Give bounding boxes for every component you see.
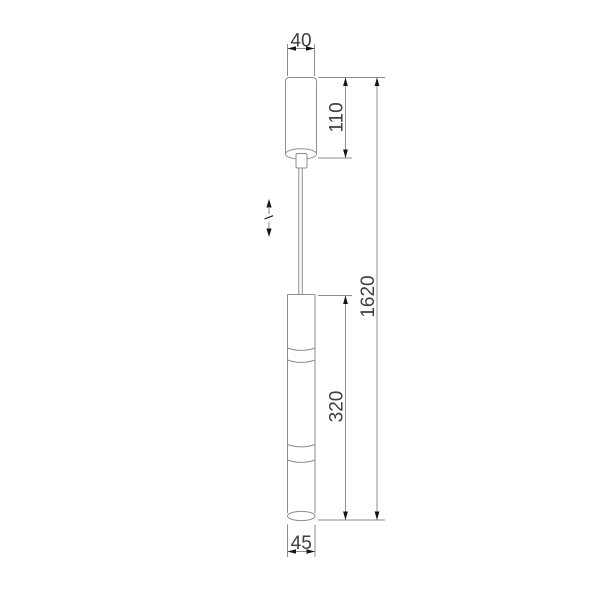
canopy	[286, 78, 317, 169]
drawing-canvas: 40 110 320 1620	[0, 0, 600, 600]
arrowhead-down	[375, 512, 380, 521]
down-arrow-icon	[266, 229, 271, 238]
dim-label-body-height: 320	[327, 391, 348, 423]
dim-canopy-width: 40	[288, 31, 315, 77]
height-adjust-icon	[265, 199, 274, 237]
arrowhead-down	[343, 512, 348, 521]
dim-label-total-height: 1620	[358, 275, 379, 317]
lamp-body	[288, 295, 316, 521]
upper-band-bottom-arc	[288, 360, 316, 362]
dim-body-diameter: 45	[288, 525, 316, 558]
dim-total-height: 1620	[358, 78, 379, 521]
arrowhead-down	[343, 150, 348, 159]
cable-connector	[296, 154, 307, 169]
dim-label-canopy-width: 40	[290, 31, 311, 52]
suspension-cable	[299, 168, 303, 295]
break-mark-icon	[265, 216, 274, 219]
lamp-bottom-rim	[288, 511, 316, 520]
lower-band-bottom-arc	[288, 460, 316, 462]
up-arrow-icon	[266, 199, 271, 208]
dim-body-height: 320	[327, 296, 348, 521]
arrowhead-up	[343, 296, 348, 305]
dim-canopy-height: 110	[327, 78, 348, 159]
dim-label-canopy-height: 110	[327, 102, 348, 132]
canopy-body	[286, 78, 317, 154]
arrowhead-up	[375, 78, 380, 87]
upper-band-top-arc	[288, 348, 316, 350]
lower-band-top-arc	[288, 445, 316, 447]
dim-label-body-diameter: 45	[291, 533, 312, 554]
pendant-lamp-dimension-drawing: 40 110 320 1620	[0, 0, 600, 600]
arrowhead-up	[343, 78, 348, 87]
